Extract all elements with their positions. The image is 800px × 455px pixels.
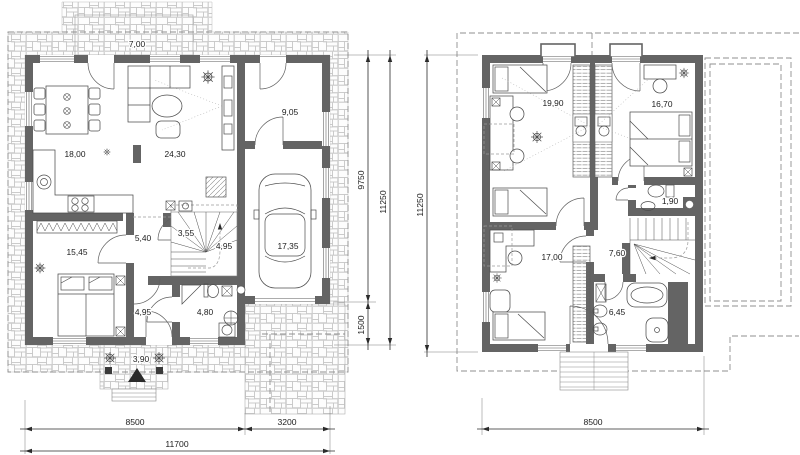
area-label-bathroom: 6,45 <box>609 307 626 317</box>
chair <box>510 107 524 121</box>
area-label-utility: 9,05 <box>282 107 299 117</box>
area-label-garage: 17,35 <box>278 241 299 251</box>
single-bed <box>493 312 545 340</box>
floor-plan-drawing: 7,00 18,00 24,30 9,05 17,35 15,45 5,40 3… <box>0 0 800 455</box>
upper-floor-plan: 19,90 16,70 1,90 17,00 7,60 6,45 <box>457 33 799 390</box>
area-label-dining: 18,00 <box>65 149 86 159</box>
floor-plan-page: 7,00 18,00 24,30 9,05 17,35 15,45 5,40 3… <box>0 0 800 455</box>
area-label-terrace: 7,00 <box>129 39 146 49</box>
chair <box>653 79 667 93</box>
bathtub <box>627 283 667 307</box>
shower <box>646 318 668 342</box>
flue-icon <box>237 286 245 294</box>
area-label-hall: 7,60 <box>609 248 626 258</box>
window <box>190 337 218 345</box>
double-bed <box>630 112 692 166</box>
ground-floor-plan: 7,00 18,00 24,30 9,05 17,35 15,45 5,40 3… <box>8 2 348 414</box>
chair <box>510 149 524 163</box>
dim-side-garage: 1500 <box>356 315 366 334</box>
plant-icon <box>153 352 165 364</box>
wardrobe <box>573 246 590 342</box>
dim-bottom-main-floor2: 8500 <box>583 417 602 427</box>
plant-icon <box>679 68 689 78</box>
driveway <box>245 304 345 414</box>
armchair <box>156 121 180 138</box>
fireplace-icon <box>206 177 226 197</box>
window <box>616 344 646 352</box>
balcony-outline <box>705 58 791 306</box>
coffee-table <box>152 95 182 117</box>
garage-door <box>255 296 315 304</box>
window <box>322 112 330 146</box>
area-label-bedroom-lower: 17,00 <box>542 252 563 262</box>
window <box>200 55 230 63</box>
area-label-closet: 3,55 <box>178 228 195 238</box>
dim-side-total: 11250 <box>378 190 388 213</box>
area-label-porch: 3,90 <box>133 354 150 364</box>
area-label-stairs: 4,95 <box>216 241 233 251</box>
window <box>482 88 490 118</box>
dim-side-total-floor2: 11250 <box>415 193 425 216</box>
area-label-hall: 5,40 <box>135 233 152 243</box>
dim-bottom-total: 11700 <box>165 439 188 449</box>
plant-icon <box>104 352 116 364</box>
area-label-bedroom: 15,45 <box>67 247 88 257</box>
wardrobe <box>573 65 590 177</box>
dim-side-main: 9750 <box>356 170 366 189</box>
single-bed <box>493 188 547 216</box>
area-label-bathroom: 4,80 <box>197 307 214 317</box>
window <box>25 182 33 210</box>
exterior-stairs <box>560 352 628 390</box>
duct-shaft <box>668 282 688 344</box>
window <box>53 337 86 345</box>
window <box>150 55 180 63</box>
armchair <box>490 290 510 312</box>
window <box>25 92 33 126</box>
car <box>254 174 316 288</box>
window <box>538 344 566 352</box>
area-label-living: 24,30 <box>165 149 186 159</box>
wardrobe <box>595 65 612 177</box>
dim-bottom-main: 8500 <box>125 417 144 427</box>
plant-icon <box>35 263 46 274</box>
window <box>322 168 330 198</box>
plant-icon <box>492 273 502 283</box>
window <box>322 248 330 278</box>
dim-bottom-garage: 3200 <box>277 417 296 427</box>
hob-icon <box>103 148 110 155</box>
area-label-wc: 1,90 <box>662 196 679 206</box>
window <box>40 55 74 63</box>
single-bed <box>493 65 547 93</box>
dining-table <box>34 86 100 134</box>
plant-icon <box>531 131 543 143</box>
area-label-hall-lower: 4,95 <box>135 307 152 317</box>
window <box>482 292 490 322</box>
area-label-bedroom-left: 19,90 <box>543 98 564 108</box>
plant-icon <box>201 70 214 83</box>
chair <box>508 251 522 265</box>
area-label-bedroom-right: 16,70 <box>652 99 673 109</box>
